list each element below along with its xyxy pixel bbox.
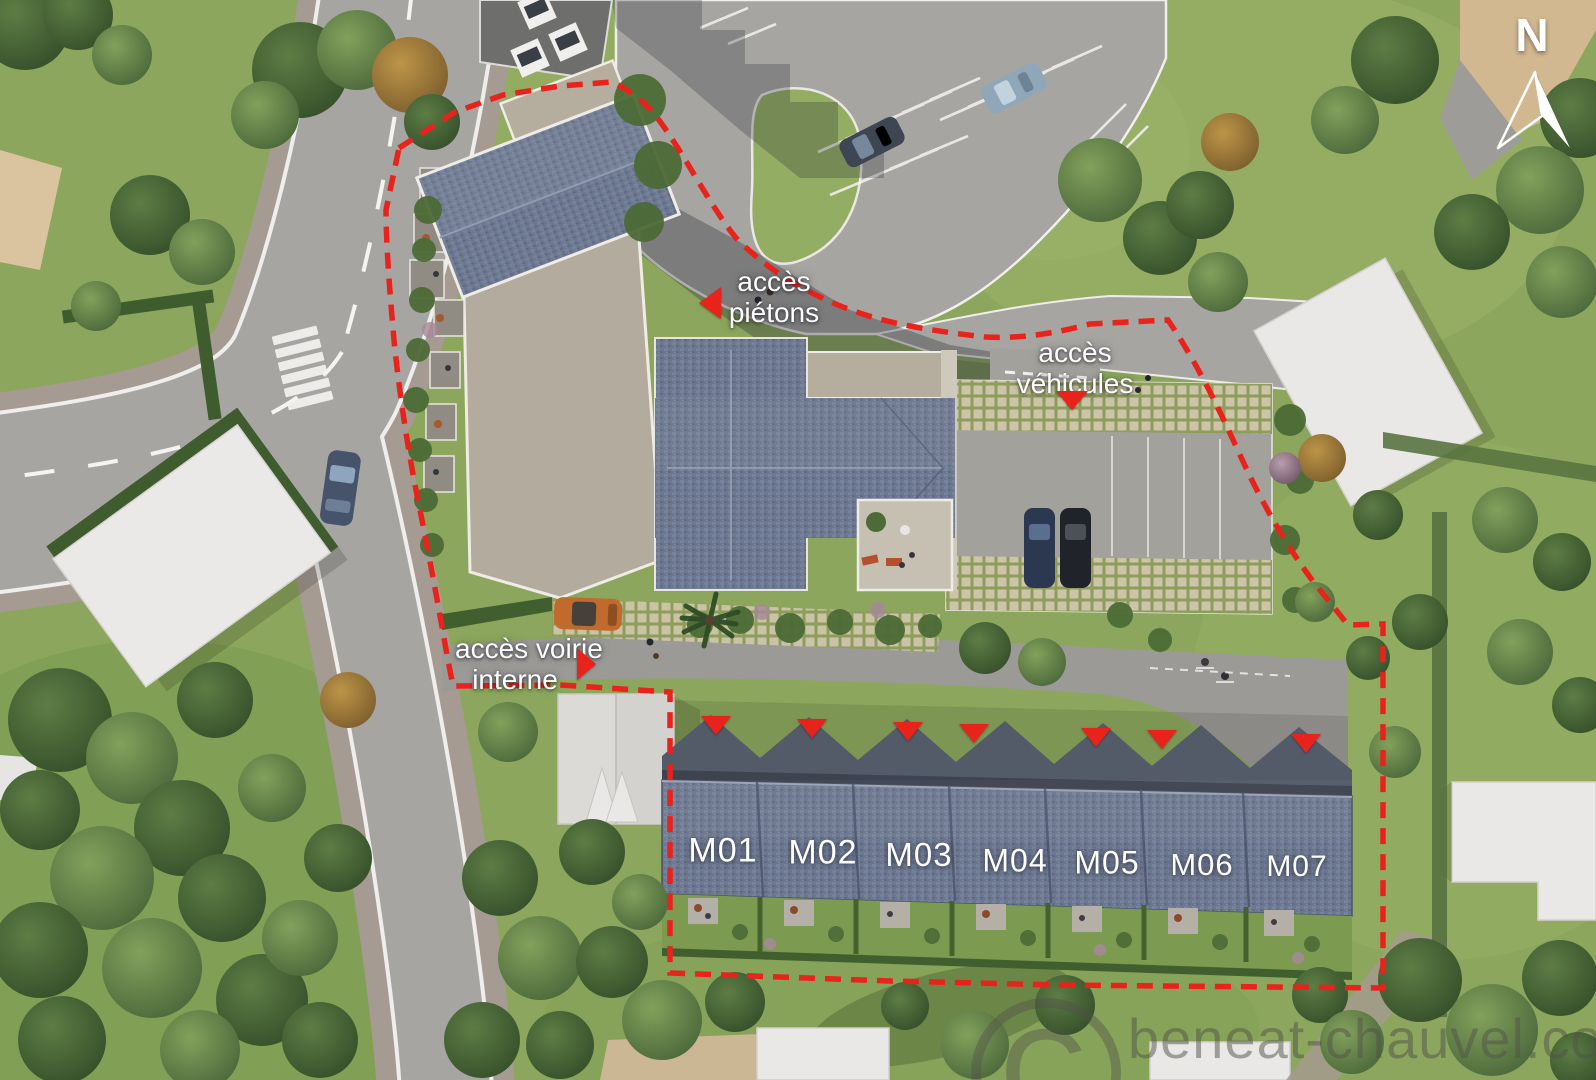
car-orange: [553, 597, 622, 631]
site-plan: accès piétons accès véhicules accès voir…: [0, 0, 1596, 1080]
site-parking: [946, 348, 1272, 614]
house-roofs: [662, 780, 1352, 916]
terrace-southeast: [858, 500, 952, 590]
site-plan-rendering: [0, 0, 1596, 1080]
car-site-1: [1024, 508, 1055, 588]
neighbor-building-south: [757, 1028, 889, 1080]
car-site-2: [1060, 508, 1091, 588]
